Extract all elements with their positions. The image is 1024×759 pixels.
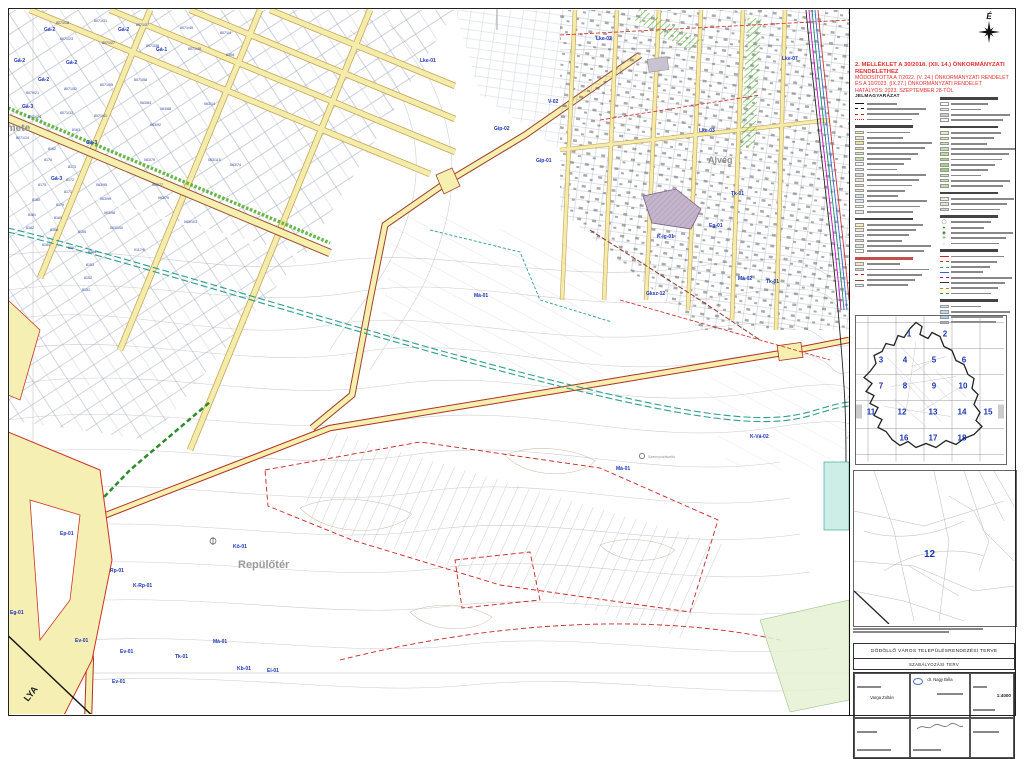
zone-code-label: K-íg-01 [657,234,674,240]
legend-swatch [940,293,949,294]
title-block: GÖDÖLLŐ VÁROS TELEPÜLÉSRENDEZÉSI TERVE S… [853,643,1015,759]
legend-swatch [855,157,864,161]
legend-column: JELMAGYARÁZAT [855,94,932,312]
legend-swatch [940,108,949,112]
legend-swatch [855,162,864,166]
parcel-number-label: 8180 [32,198,40,202]
legend-swatch [855,199,864,203]
zone-code-label: Gá-2 [14,58,25,64]
legend-swatch [940,208,949,212]
legend-swatch [940,113,949,117]
legend-item-text [951,169,988,171]
legend-item [855,209,932,214]
zone-code-label: Tk-01 [731,191,744,197]
legend-swatch [940,197,949,201]
parcel-number-label: 8071/18 [56,21,69,25]
legend-swatch [855,205,864,209]
sheet-number-label: 2 [943,330,948,339]
legend-section-header [855,218,913,221]
legend-item-text [867,250,924,252]
zone-code-label: Ep-01 [60,531,74,537]
zone-code-label: K-Vá-02 [750,434,769,440]
map-canvas: 8071/188071/318071/378071/458071/48071/2… [0,0,849,723]
scale-cell: 1:4000 [970,673,1014,718]
parcel-number-label: 8071/14 [16,136,29,140]
legend-swatch: ◌ [940,242,949,246]
legend-item [855,117,932,122]
parcel-number-label: 8168 [50,228,58,232]
parcel-number-label: 8071/27 [102,41,115,45]
legend-item-text [951,287,998,289]
legend-swatch [855,274,864,275]
zone-code-label: Gá-2 [118,27,129,33]
legend-swatch [855,280,864,281]
company-cell [854,718,910,758]
legend-swatch [940,152,949,156]
parcel-number-label: 8071/52 [64,87,77,91]
legend-item-text [951,237,1006,239]
legend-item-text [951,114,1010,116]
zone-code-label: Gá-2 [38,77,49,83]
parcel-number-label: 063/98 [104,211,115,215]
legend-swatch [940,184,949,188]
legend-swatch [855,114,864,115]
parcel-number-label: 8175 [38,183,46,187]
legend-item-text [951,293,991,295]
legend-item-text [867,169,897,171]
legend-item-text [867,147,925,149]
zone-code-label: Gá-3 [22,104,33,110]
legend-item-text [867,132,910,134]
legend-item-text [867,185,912,187]
legend-item-text [951,175,981,177]
zone-code-label: Má-02 [738,276,752,282]
zone-code-label: Lke-02 [596,36,612,42]
zone-code-label: Gá-3 [51,176,62,182]
architect-cell: dr. Nagy Béla [910,673,970,718]
legend-title: JELMAGYARÁZAT [855,94,932,99]
legend-swatch [855,141,864,145]
legend-item-text [951,109,981,111]
legend-swatch [855,131,864,135]
legend-item-text [951,159,1002,161]
parcel-number-label: 063/100 [110,226,123,230]
legend-swatch [940,288,949,289]
legend-swatch [940,282,949,283]
legend-item-text [951,153,1009,155]
sheet-number-label: 3 [879,356,884,365]
parcel-number-label: 8151 [82,288,90,292]
legend-swatch [940,168,949,172]
legend-column: ◯●◉✳◌ [940,94,1017,312]
legend-item [855,283,932,288]
parcel-number-label: 8071/37 [136,23,149,27]
legend-item-text [867,234,909,236]
date-cell [970,718,1014,758]
designer-name: Varga Zoltán [857,695,907,700]
legend-item-text [867,245,931,247]
legend-item-text [867,142,932,144]
parcel-number-label: 8155 [78,230,86,234]
parcel-number-label: 063/103 [184,220,197,224]
legend-swatch [940,137,949,141]
legend-swatch [855,173,864,177]
zone-code-label: Gip-02 [494,126,510,132]
legend-swatch [855,268,864,272]
north-label: É [977,12,1001,21]
zone-code-label: Gip-01 [536,158,552,164]
zone-code-label: Lke-01 [420,58,436,64]
sheet-number-label: 12 [898,408,907,417]
legend-swatch [940,202,949,206]
zone-code-label: Gá-2 [44,27,55,33]
legend-item-text [951,132,1001,134]
legend-section-header [855,257,913,260]
legend-item-text [867,279,915,281]
zone-code-label: Ev-01 [112,679,126,685]
zone-code-label: Eg-01 [709,223,723,229]
legend-item-text [867,103,897,105]
legend-swatch [855,249,864,253]
parcel-number-label: 8071/24 [28,115,41,119]
legend-swatch [940,118,949,122]
legend-item-text [951,261,997,263]
zone-code-label: Gá-2 [66,60,77,66]
parcel-number-label: 8304 [226,53,234,57]
legend-item-text [951,203,1007,205]
zone-code-label: Tk-01 [766,279,779,285]
legend-swatch [855,184,864,188]
legend-swatch [855,239,864,243]
legend-swatch [940,277,949,278]
place-name-label: Repülőtér [238,559,290,571]
sheet-number-label: 8 [903,382,908,391]
parcel-number-label: 8154 [88,250,96,254]
legend-item-text [951,103,988,105]
legend-item-text [951,282,1005,284]
legend-section-header [940,299,998,302]
plan-subtitle: SZABÁLYOZÁSI TERV [853,659,1015,670]
title-block-table: Varga Zoltán dr. Nagy Béla 1:4000 [853,672,1015,759]
regulation-line: 2. MELLÉKLET A 30/2018. (XII. 14.) ÖNKOR… [855,62,1015,75]
parcel-number-label: 8169 [54,216,62,220]
legend-item-text [867,174,926,176]
legend-item-text [951,143,987,145]
zone-code-label: V-02 [548,99,559,105]
legend-item-text [867,263,900,265]
zone-code-label: Lke-07 [782,56,798,62]
legend-item-text [867,119,912,121]
sheet-number-label: 6 [962,356,967,365]
sheet-number-label: 5 [932,356,937,365]
sheet-number-label: 11 [867,408,876,417]
parcel-number-label: 8172 [66,178,74,182]
parcel-number-label: 063/95 [96,183,107,187]
legend-swatch [855,119,864,120]
legend-item-text [867,190,905,192]
zone-code-label: Ei-01 [267,668,279,674]
zone-code-label: Ev-01 [75,638,89,644]
legend-swatch [940,310,949,314]
parcel-number-label: 8163 [72,128,80,132]
zone-code-label: Lke-03 [699,128,715,134]
legend-item [855,249,932,254]
place-name-label: Remete [0,123,31,134]
fineprint-notes [853,628,1015,635]
map-scale: 1:4000 [973,693,1011,698]
sheet-number-label: 13 [929,408,938,417]
parcel-number-label: 063/92 [150,123,161,127]
sheet-number-label: 18 [958,434,967,443]
side-panel: É 2. MELLÉKLET A 30/2018. (XII. 14.) ÖNK… [849,8,1017,715]
parcel-number-label: 8181 [28,213,36,217]
legend-item-text [867,108,926,110]
parcel-number-label: 8079/21 [26,91,39,95]
legend-item-text [951,243,999,245]
sheet-number-label: 4 [903,356,908,365]
zone-code-label: Má-01 [616,466,630,472]
legend-item-text [867,195,898,197]
parcel-number-label: 8071/55 [100,83,113,87]
legend-section-header [855,125,913,128]
zone-code-label: Má-01 [213,639,227,645]
parcel-number-label: 8152 [84,276,92,280]
legend-swatch [940,102,949,106]
parcel-number-label: 8071/45 [180,26,193,30]
legend-swatch [940,256,949,257]
sheet-number-label: 14 [958,408,967,417]
legend-item [940,207,1017,212]
legend-item-text [951,180,1010,182]
legend-item-text [867,240,902,242]
parcel-number-label: 8179 [56,203,64,207]
detail-sheet-number: 12 [924,549,936,560]
regulation-title: 2. MELLÉKLET A 30/2018. (XII. 14.) ÖNKOR… [855,62,1015,94]
parcel-number-label: 8071/31 [94,19,107,23]
legend-swatch [940,261,949,262]
overview-index-map[interactable]: 123456789101112131415161718 [855,315,1007,465]
legend-swatch [855,228,864,232]
legend-swatch [855,103,864,104]
legend-item-text [867,206,920,208]
parcel-number-label: 8071/58 [134,78,147,82]
legend-item-text [867,158,911,160]
sheet-number-label: 10 [959,382,968,391]
legend-swatch [855,178,864,182]
legend-item-text [867,224,923,226]
detail-streets [854,471,1014,621]
designer-cell: Varga Zoltán [854,673,910,718]
legend-swatch [940,174,949,178]
place-name-label: Szennyvíztisztító [648,455,675,459]
legend-item [940,117,1017,122]
legend-item-text [951,227,984,229]
legend-swatch [940,163,949,167]
zone-code-label: Eg-01 [10,610,24,616]
legend-item-text [867,269,929,271]
legend-item-text [951,137,994,139]
legend-item-text [867,113,919,115]
legend-item-text [867,274,922,276]
legend-item-text [951,306,981,308]
parcel-number-label: 8071/41 [94,114,107,118]
legend-swatch: ✳ [940,236,949,240]
legend-swatch [940,158,949,162]
legend-swatch [855,223,864,227]
legend-swatch [940,267,949,268]
main-zoning-map[interactable]: 8071/188071/318071/378071/458071/48071/2… [0,0,849,723]
parcel-number-label: 8182 [26,226,34,230]
legend-item-text [867,200,927,202]
legend-item [940,291,1017,296]
parcel-number-label: 8071/23 [60,37,73,41]
legend-item-text [951,266,990,268]
sheet-number-label: 9 [932,382,937,391]
legend-item-text [951,119,1003,121]
legend-swatch [855,284,864,288]
sheet-number-label: 15 [984,408,993,417]
legend-item-text [951,198,1014,200]
parcel-number-label: 063/75 [158,196,169,200]
legend-swatch: ◯ [940,220,949,224]
legend-item-text [951,221,991,223]
parcel-number-label: 8071/48 [188,47,201,51]
parcel-number-label: 8174 [44,158,52,162]
legend-item-text [867,211,913,213]
legend-swatch [855,152,864,156]
parcel-number-label: 8173 [68,165,76,169]
legend-section-header [940,97,998,100]
parcel-number-label: 8153 [86,263,94,267]
legend-item-text [951,148,1016,150]
parcel-number-label: 8184 [42,243,50,247]
plan-title: GÖDÖLLŐ VÁROS TELEPÜLÉSRENDEZÉSI TERVE [853,643,1015,659]
parcel-number-label: 8162 [48,147,56,151]
legend-section-header [940,249,998,252]
legend: JELMAGYARÁZAT◯●◉✳◌ [855,94,1015,312]
sheet-numbers: 123456789101112131415161718 [867,330,993,443]
legend-section-header [940,215,998,218]
parcel-number-label: 8071/4 [220,31,231,35]
legend-item-text [951,271,983,273]
legend-swatch [940,272,949,273]
legend-item-text [867,137,903,139]
legend-item-text [951,185,1003,187]
parcel-number-label: 0117/6 [134,248,145,252]
zone-code-label: Kö-01 [233,544,247,550]
legend-swatch [855,210,864,214]
legend-swatch [855,189,864,193]
legend-swatch [855,194,864,198]
parcel-number-label: 8171 [64,190,72,194]
zone-code-label: K-Rp-01 [133,583,152,589]
legend-item-text [867,229,916,231]
legend-item-text [951,209,1000,211]
legend-item-text [951,311,1010,313]
legend-item: ◌ [940,241,1017,246]
legend-item-text [867,163,904,165]
zone-code-label: Rp-01 [110,568,124,574]
zone-code-label: Má-01 [474,293,488,299]
legend-item-text [951,164,995,166]
parcel-number-label: 8071/33 [60,111,73,115]
parcel-number-label: 063/115 [208,158,221,162]
sheet-number-label: 1 [907,330,912,339]
parcel-number-label: 8167 [68,246,76,250]
legend-item-text [951,256,1004,258]
legend-swatch [940,131,949,135]
parcel-number-label: 063/14 [204,102,215,106]
place-name-label: Alvég [708,155,733,165]
zone-code-label: Kb-01 [237,666,251,672]
parcel-number-label: 063/79 [144,158,155,162]
zone-code-label: Gá-1 [156,47,167,53]
signature-cell [910,718,970,758]
legend-section-header [940,192,998,195]
regulation-line: HATÁLYOS: 2023. SZEPTEMBER 28-TÓL [855,88,1015,94]
zone-code-label: Ev-01 [120,649,134,655]
parcel-number-label: 063/99 [100,197,111,201]
compass-rose-icon [978,21,1000,43]
zone-code-label: Gá-3 [86,140,97,146]
legend-swatch [855,147,864,151]
north-arrow: É [977,12,1001,48]
legend-item-text [867,153,918,155]
legend-swatch [940,147,949,151]
parcel-number-label: 063/74 [230,163,241,167]
legend-swatch [855,136,864,140]
parcel-number-label: 063/88 [160,107,171,111]
company-logo [913,678,923,685]
zone-code-label: Gksz-12 [646,291,665,297]
legend-swatch [940,305,949,309]
legend-item [940,183,1017,188]
legend-swatch [855,168,864,172]
zone-code-label: Tk-01 [175,654,188,660]
legend-swatch [855,262,864,266]
legend-swatch [855,244,864,248]
legend-swatch [940,179,949,183]
legend-swatch [940,142,949,146]
legend-item-text [867,284,908,286]
legend-swatch [855,234,864,238]
parcel-number-label: 063/77 [152,183,163,187]
legend-swatch [855,108,864,109]
sheet-number-label: 16 [900,434,909,443]
detail-index-map[interactable]: 12 [853,470,1017,627]
sheet-number-label: 17 [929,434,938,443]
legend-item-text [867,179,919,181]
sheet-number-label: 7 [879,382,884,391]
legend-item-text [951,232,1013,234]
parcel-number-label: 063/84 [140,101,151,105]
legend-item-text [951,277,1012,279]
legend-section-header [940,126,998,129]
